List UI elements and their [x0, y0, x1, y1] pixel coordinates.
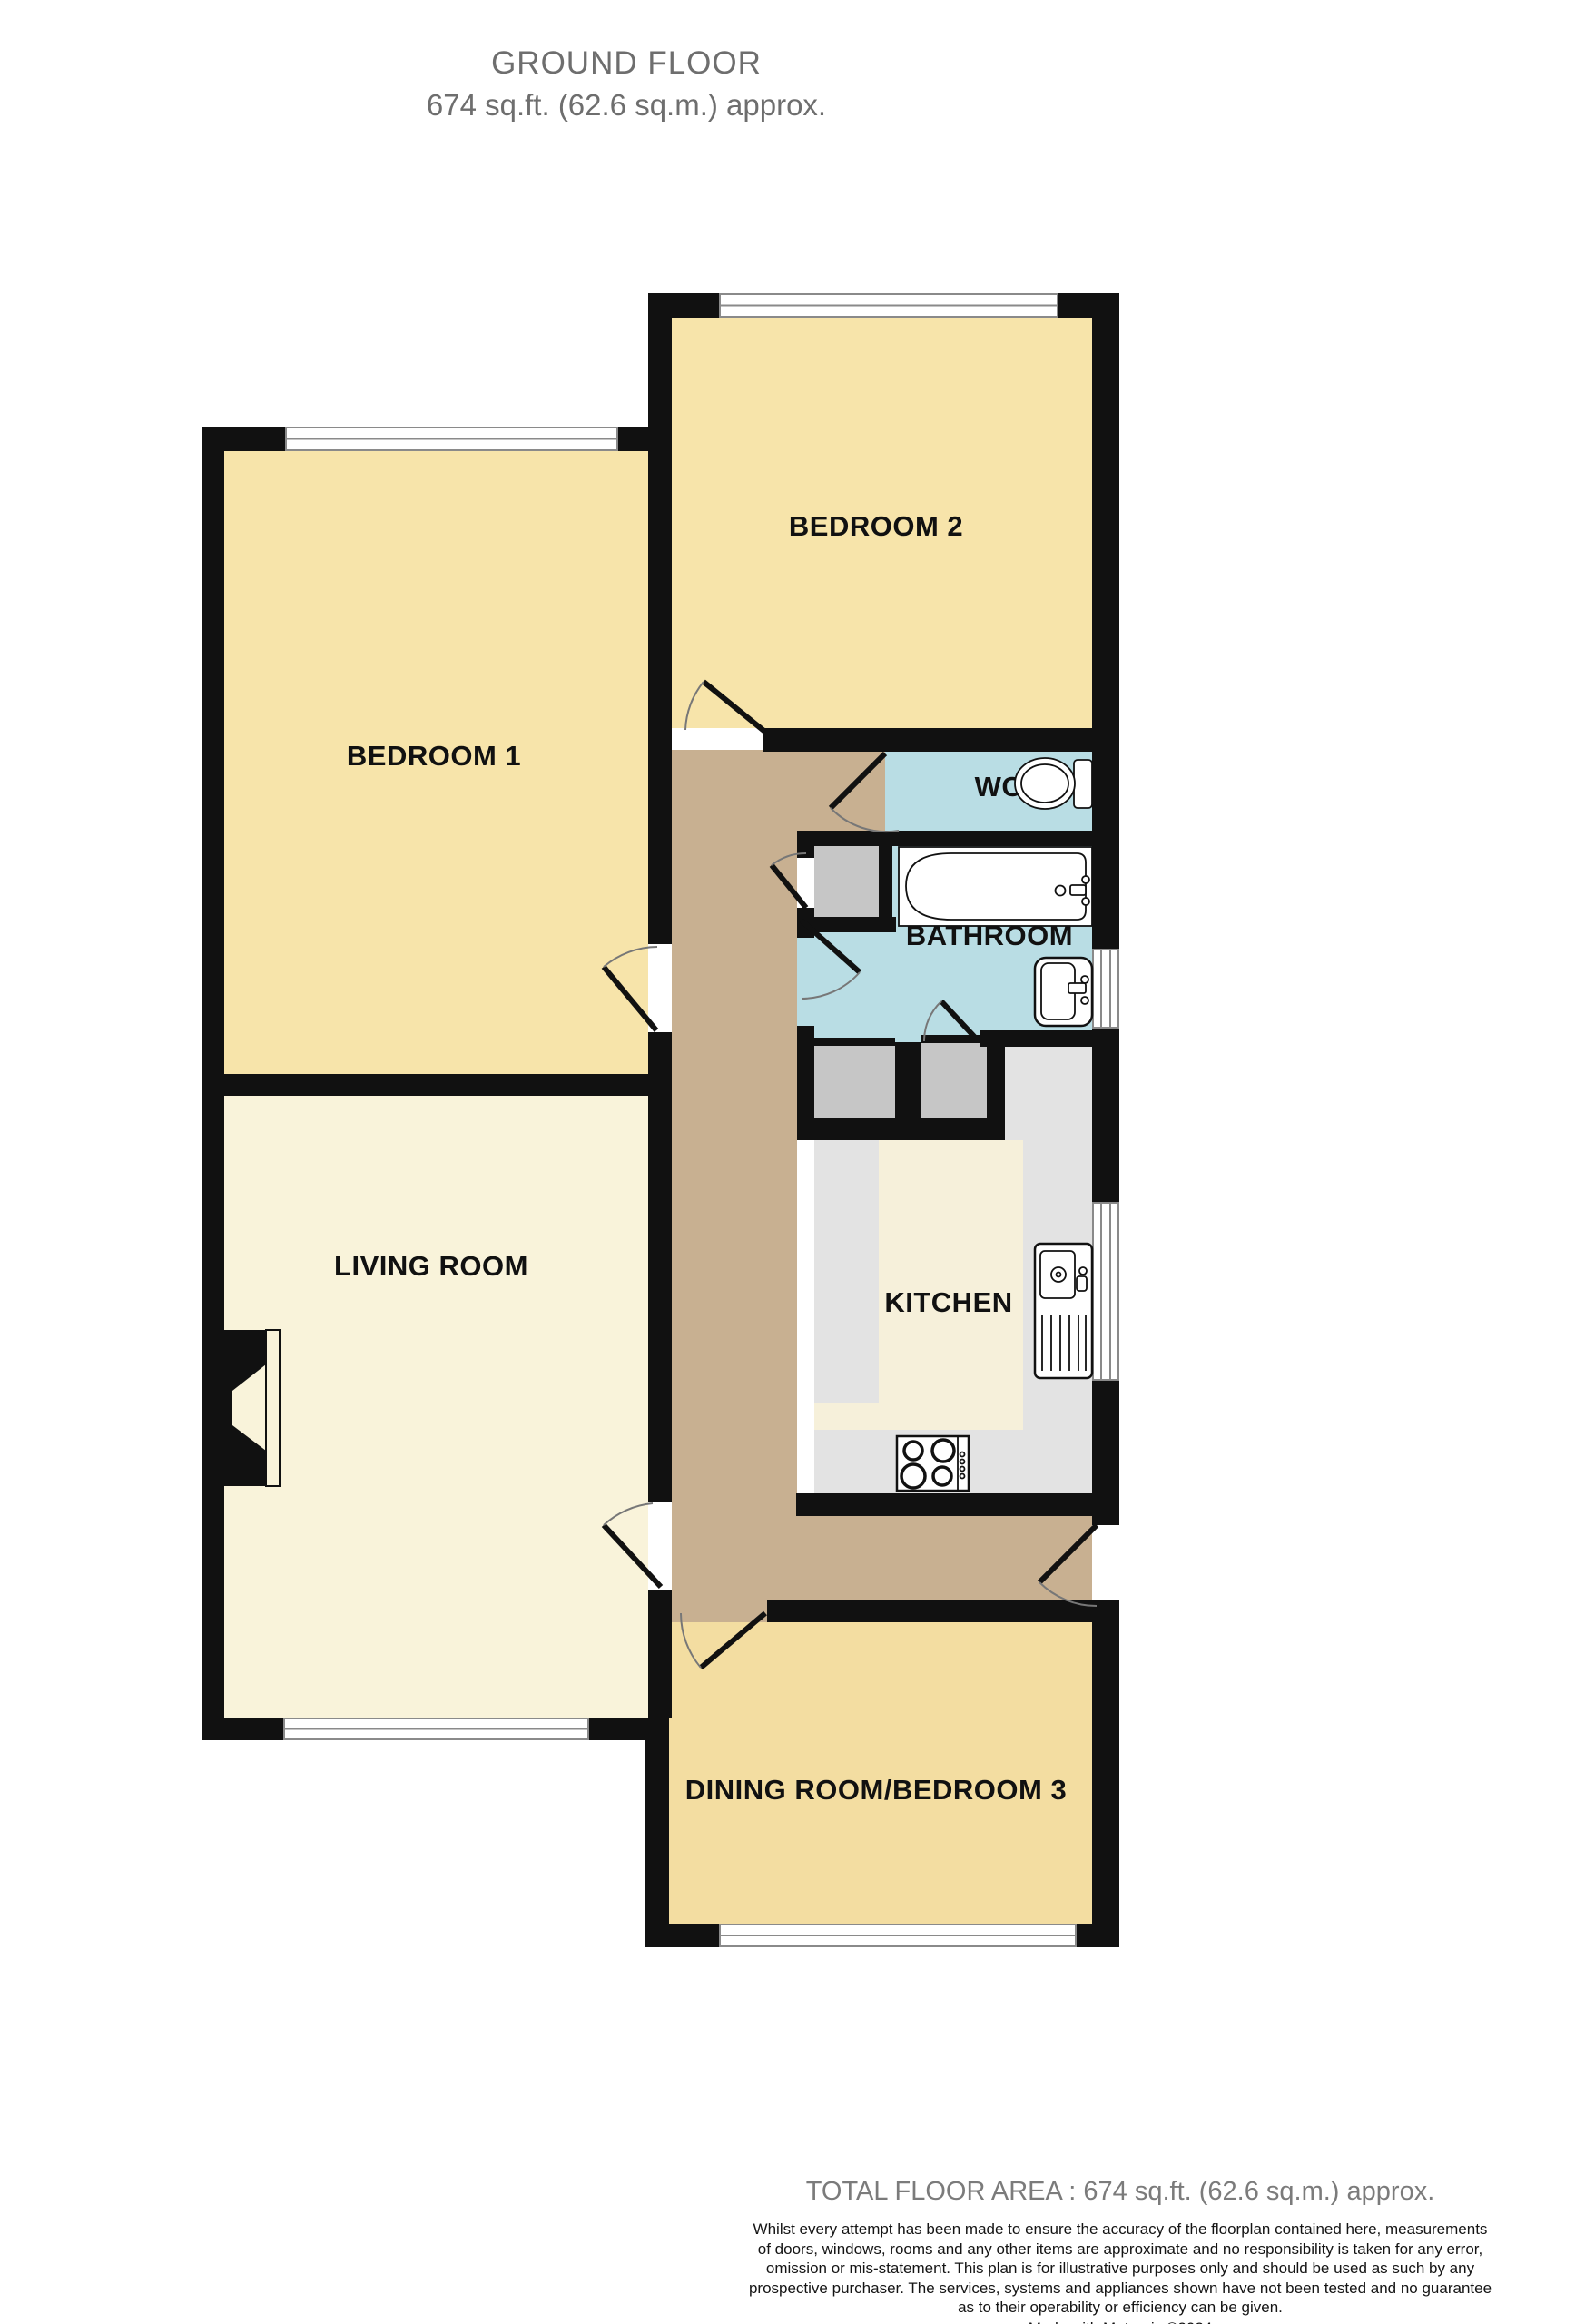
living-room-floor: [224, 1096, 648, 1718]
kitchen-floor-center: [879, 1140, 1023, 1430]
wall-segment: [648, 1590, 672, 1718]
floorplan-page: GROUND FLOOR 674 sq.ft. (62.6 sq.m.) app…: [0, 0, 1595, 2324]
kitchen-floor-wrap: [814, 1403, 879, 1430]
toilet-icon: [1015, 758, 1092, 809]
wall-segment: [879, 831, 892, 921]
wall-segment: [796, 1493, 1119, 1516]
disclaimer-line: prospective purchaser. The services, sys…: [712, 2279, 1529, 2299]
wall-segment: [797, 1026, 814, 1140]
disclaimer-line: omission or mis-statement. This plan is …: [712, 2259, 1529, 2279]
hob-icon: [897, 1436, 969, 1491]
room-label-kitchen: KITCHEN: [884, 1286, 1012, 1318]
window-living-room: [284, 1718, 588, 1739]
cupboard-left-floor: [814, 1044, 895, 1118]
disclaimer-line: as to their operability or efficiency ca…: [712, 2298, 1529, 2318]
room-label-dining: DINING ROOM/BEDROOM 3: [685, 1774, 1067, 1806]
disclaimer-line: Whilst every attempt has been made to en…: [712, 2220, 1529, 2240]
plan-footer: TOTAL FLOOR AREA : 674 sq.ft. (62.6 sq.m…: [712, 2177, 1529, 2324]
floor-plan: WC: [0, 0, 1595, 2324]
window-dining-room: [720, 1925, 1076, 1946]
disclaimer-line: of doors, windows, rooms and any other i…: [712, 2240, 1529, 2260]
wall-segment: [648, 1032, 672, 1502]
wall-segment: [767, 1600, 1119, 1622]
wall-segment: [895, 1042, 921, 1140]
hallway-wc-branch-floor: [766, 750, 885, 831]
wall-segment: [648, 293, 672, 944]
room-label-bathroom: BATHROOM: [906, 920, 1073, 951]
wall-segment: [763, 728, 1092, 752]
wall-segment: [202, 427, 224, 1740]
hallway-corridor-floor: [796, 1516, 1092, 1600]
room-label-bedroom1: BEDROOM 1: [347, 740, 521, 772]
bathroom-sink-icon: [1035, 958, 1092, 1026]
dining-room-floor: [669, 1622, 1092, 1924]
bathroom-doorway-floor: [797, 938, 814, 1026]
kitchen-sink-icon: [1035, 1244, 1092, 1378]
wall-segment: [797, 831, 1092, 846]
cupboard-right-floor: [921, 1042, 987, 1118]
fireplace-hearth: [266, 1330, 280, 1486]
window-kitchen: [1093, 1203, 1118, 1380]
hallway-floor: [672, 750, 797, 1622]
metropix-credit: Made with Metropix ©2024: [712, 2319, 1529, 2324]
wall-segment: [987, 1030, 1005, 1140]
cupboard-hall-floor: [814, 846, 879, 917]
window-bathroom: [1093, 950, 1118, 1028]
wall-segment: [202, 1074, 672, 1096]
wall-segment: [1092, 1493, 1119, 1525]
wall-segment: [814, 1038, 895, 1046]
bathtub-icon: [899, 847, 1092, 926]
total-floor-area: TOTAL FLOOR AREA : 674 sq.ft. (62.6 sq.m…: [712, 2177, 1529, 2207]
window-bedroom1: [286, 428, 617, 450]
wall-segment: [1092, 1605, 1119, 1947]
room-label-bedroom2: BEDROOM 2: [789, 510, 963, 542]
wall-segment: [645, 1718, 669, 1947]
window-bedroom2: [720, 294, 1058, 317]
room-label-living: LIVING ROOM: [334, 1250, 528, 1282]
